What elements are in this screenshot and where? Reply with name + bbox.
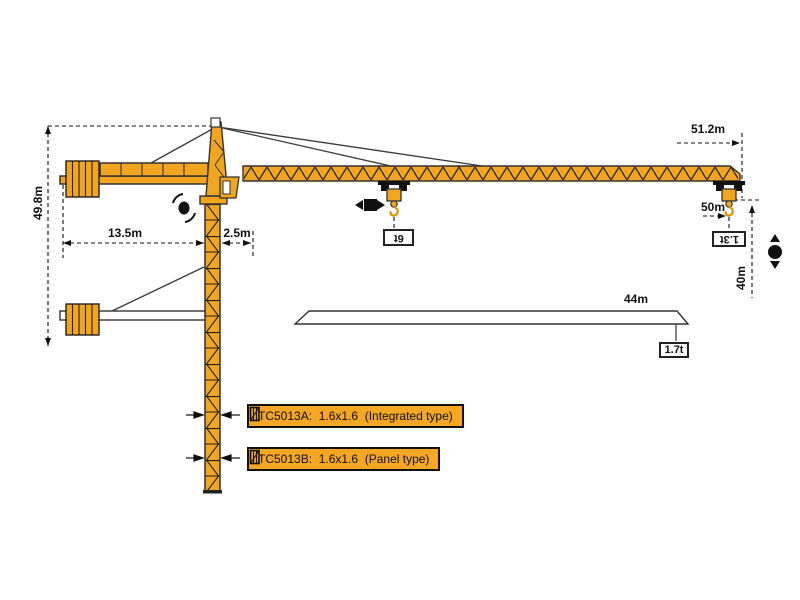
pendant-lines (151, 127, 489, 167)
max-capacity-box: 6t (383, 229, 414, 246)
short-jib-length-label: 44m (610, 292, 662, 306)
hoisting-up-down-icon (768, 234, 782, 269)
counterweight-blocks (66, 161, 99, 197)
counter-jib-radius-label: 13.5m (97, 226, 153, 240)
trolley-hook-mid (378, 181, 410, 216)
total-height-label: 49.8m (31, 173, 45, 233)
max-capacity-value: 6t (394, 232, 404, 244)
hook-height-label: 40m (734, 249, 748, 307)
tip-load-44m-box: 1.7t (659, 342, 689, 358)
slewing-rotation-icon (173, 194, 195, 222)
main-jib (243, 166, 740, 181)
variant-a-label: TC5013A: 1.6x1.6 (Integrated type) (258, 409, 453, 423)
variant-b-box: TC5013B: 1.6x1.6 (Panel type) (247, 447, 440, 471)
max-working-radius-label: 51.2m (682, 122, 734, 136)
alt-counter-jib (60, 267, 206, 335)
tip-load-44m-value: 1.7t (665, 344, 684, 356)
crane-diagram-canvas (0, 0, 800, 600)
mast-section-icon (249, 449, 262, 465)
mast (200, 196, 227, 494)
counter-jib (60, 161, 208, 197)
mast-section-icon (249, 406, 262, 422)
main-jib-length-label: 50m (696, 200, 730, 214)
variant-b-label: TC5013B: 1.6x1.6 (Panel type) (258, 452, 429, 466)
alt-44m-jib (295, 311, 688, 341)
operator-cab (220, 177, 239, 198)
rear-offset-label: 2.5m (212, 226, 262, 240)
tip-load-50m-value: 1.3t (720, 233, 739, 245)
alt-counterweight-blocks (66, 304, 99, 335)
trolley-travel-icon (355, 199, 385, 211)
tip-load-50m-box: 1.3t (712, 231, 746, 247)
crane-technical-diagram: 49.8m 13.5m 2.5m 51.2m 50m 40m 44m 6t 1.… (0, 0, 800, 600)
variant-a-box: TC5013A: 1.6x1.6 (Integrated type) (247, 404, 464, 428)
